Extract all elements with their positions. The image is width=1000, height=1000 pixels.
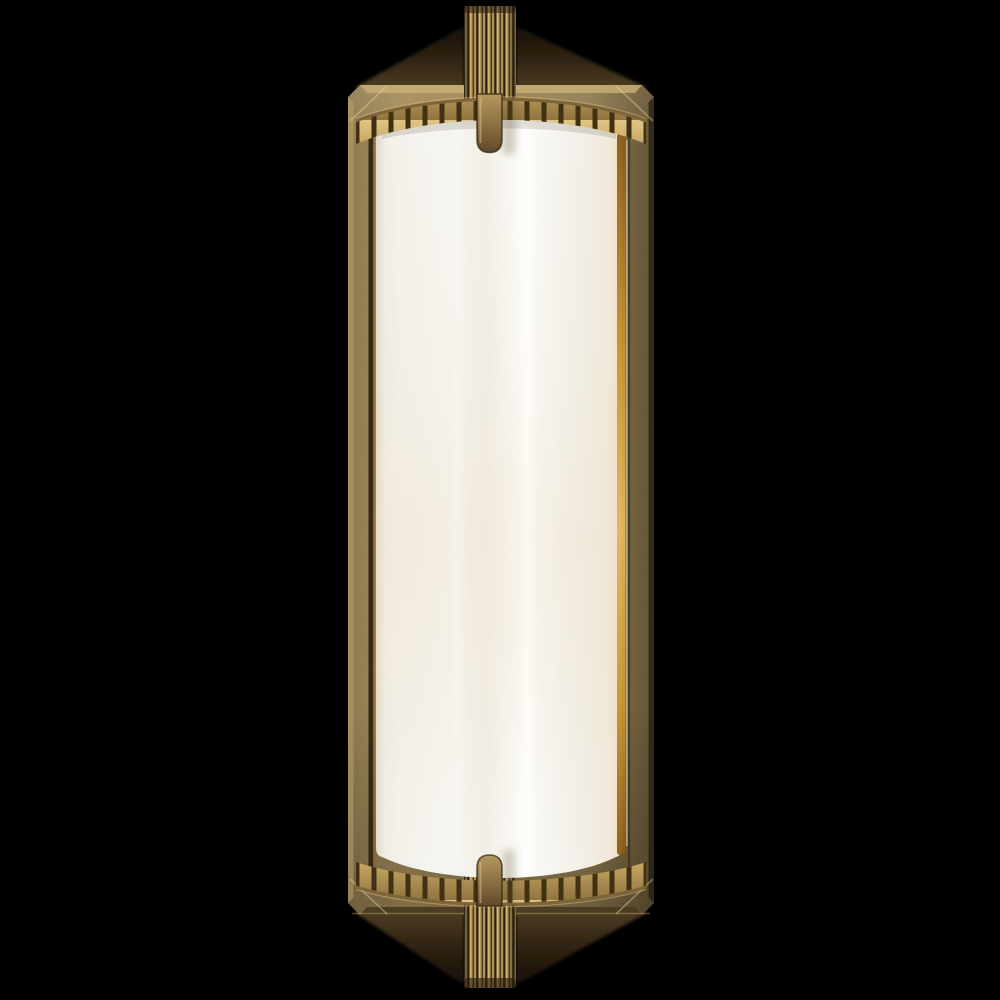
glass-clip-bottom [477, 850, 515, 906]
glass-streak [395, 140, 403, 870]
glass-clip-top [477, 94, 515, 154]
shadow-wedge-bottom-left [354, 912, 464, 985]
top-finial-stem [464, 6, 516, 106]
bottom-clip-shadow [503, 850, 515, 906]
top-stem-cap [464, 6, 516, 13]
glass-shade [376, 118, 628, 879]
shadow-wedge-top-left [354, 26, 464, 88]
backplate-bevel-right [649, 97, 655, 903]
product-photo: Brass bath wall sconce with frosted whit… [0, 0, 1000, 1000]
glass-warm-glow [376, 118, 622, 879]
shadow-wedge-top-right [516, 26, 648, 88]
glass-streak [548, 300, 554, 860]
top-clip-shadow [503, 100, 515, 154]
backplate-glass-seam-right [628, 134, 630, 866]
glass-right-edge-highlight [626, 140, 628, 846]
backplate-bevel-left [348, 97, 354, 903]
glass-right-amber-edge [617, 133, 626, 855]
top-stem-shading [464, 6, 516, 106]
glass-streak [452, 130, 464, 870]
bottom-stem-cap [464, 978, 516, 988]
backplate-glass-seam-left-amber [373, 126, 375, 878]
shadow-wedge-bottom-right [516, 912, 648, 985]
glass-streak [521, 130, 535, 872]
backplate-glass-seam-left [369, 122, 374, 882]
